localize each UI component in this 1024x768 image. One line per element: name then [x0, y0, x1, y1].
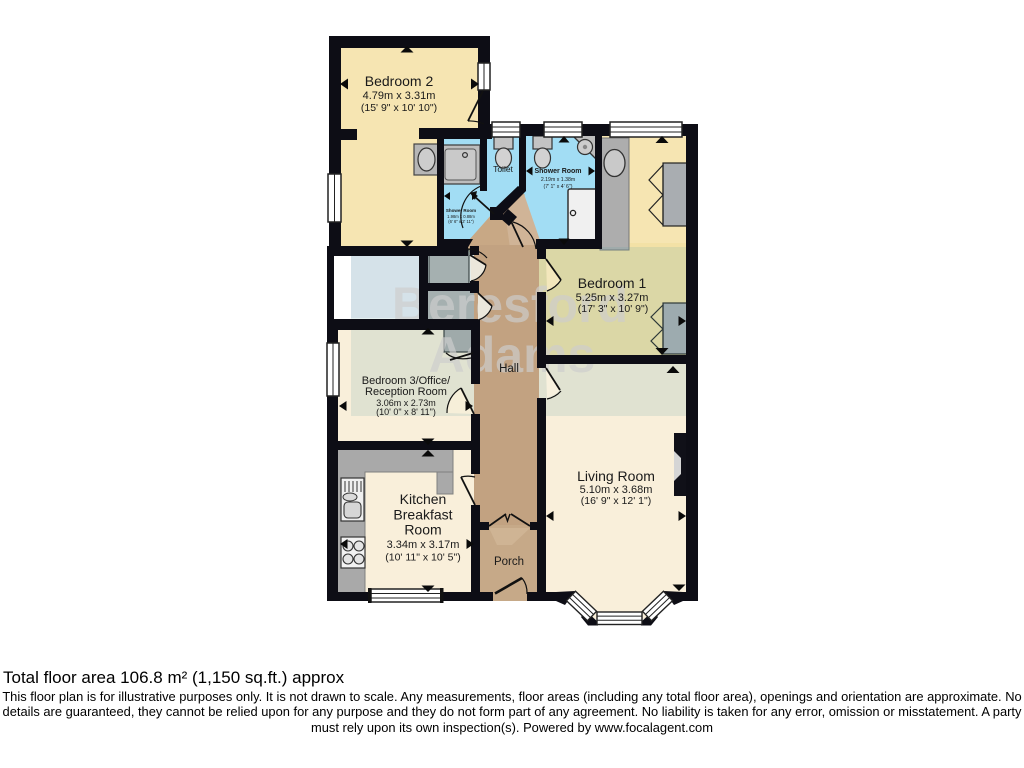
- svg-text:3.34m x 3.17m: 3.34m x 3.17m: [387, 539, 460, 551]
- svg-text:(10' 11" x 10' 5"): (10' 11" x 10' 5"): [385, 552, 460, 564]
- svg-text:Shower Room: Shower Room: [446, 208, 476, 213]
- svg-text:4.79m x 3.31m: 4.79m x 3.31m: [363, 90, 436, 102]
- svg-text:(16' 9" x 12' 1"): (16' 9" x 12' 1"): [581, 495, 651, 507]
- svg-text:Breakfast: Breakfast: [393, 507, 452, 523]
- svg-text:Shower Room: Shower Room: [534, 168, 581, 175]
- svg-text:(17' 3" x 10' 9"): (17' 3" x 10' 9"): [578, 303, 648, 315]
- svg-text:Bedroom 2: Bedroom 2: [365, 73, 434, 89]
- svg-text:Hall: Hall: [499, 363, 519, 375]
- svg-text:Reception Room: Reception Room: [365, 386, 447, 398]
- svg-text:2.19m x 1.38m: 2.19m x 1.38m: [541, 177, 575, 183]
- svg-text:Room: Room: [404, 522, 441, 538]
- svg-text:Toilet: Toilet: [493, 164, 513, 174]
- svg-text:Porch: Porch: [494, 556, 524, 568]
- svg-text:(6' 6" x 2' 11"): (6' 6" x 2' 11"): [448, 219, 474, 224]
- svg-text:Living Room: Living Room: [577, 468, 655, 484]
- svg-text:(10' 0" x 8' 11"): (10' 0" x 8' 11"): [376, 407, 436, 417]
- svg-text:Bedroom 1: Bedroom 1: [578, 275, 647, 291]
- svg-text:Kitchen: Kitchen: [400, 491, 447, 507]
- svg-text:(7' 1" x 4' 6"): (7' 1" x 4' 6"): [543, 184, 572, 190]
- svg-text:(15' 9" x 10' 10"): (15' 9" x 10' 10"): [361, 102, 437, 114]
